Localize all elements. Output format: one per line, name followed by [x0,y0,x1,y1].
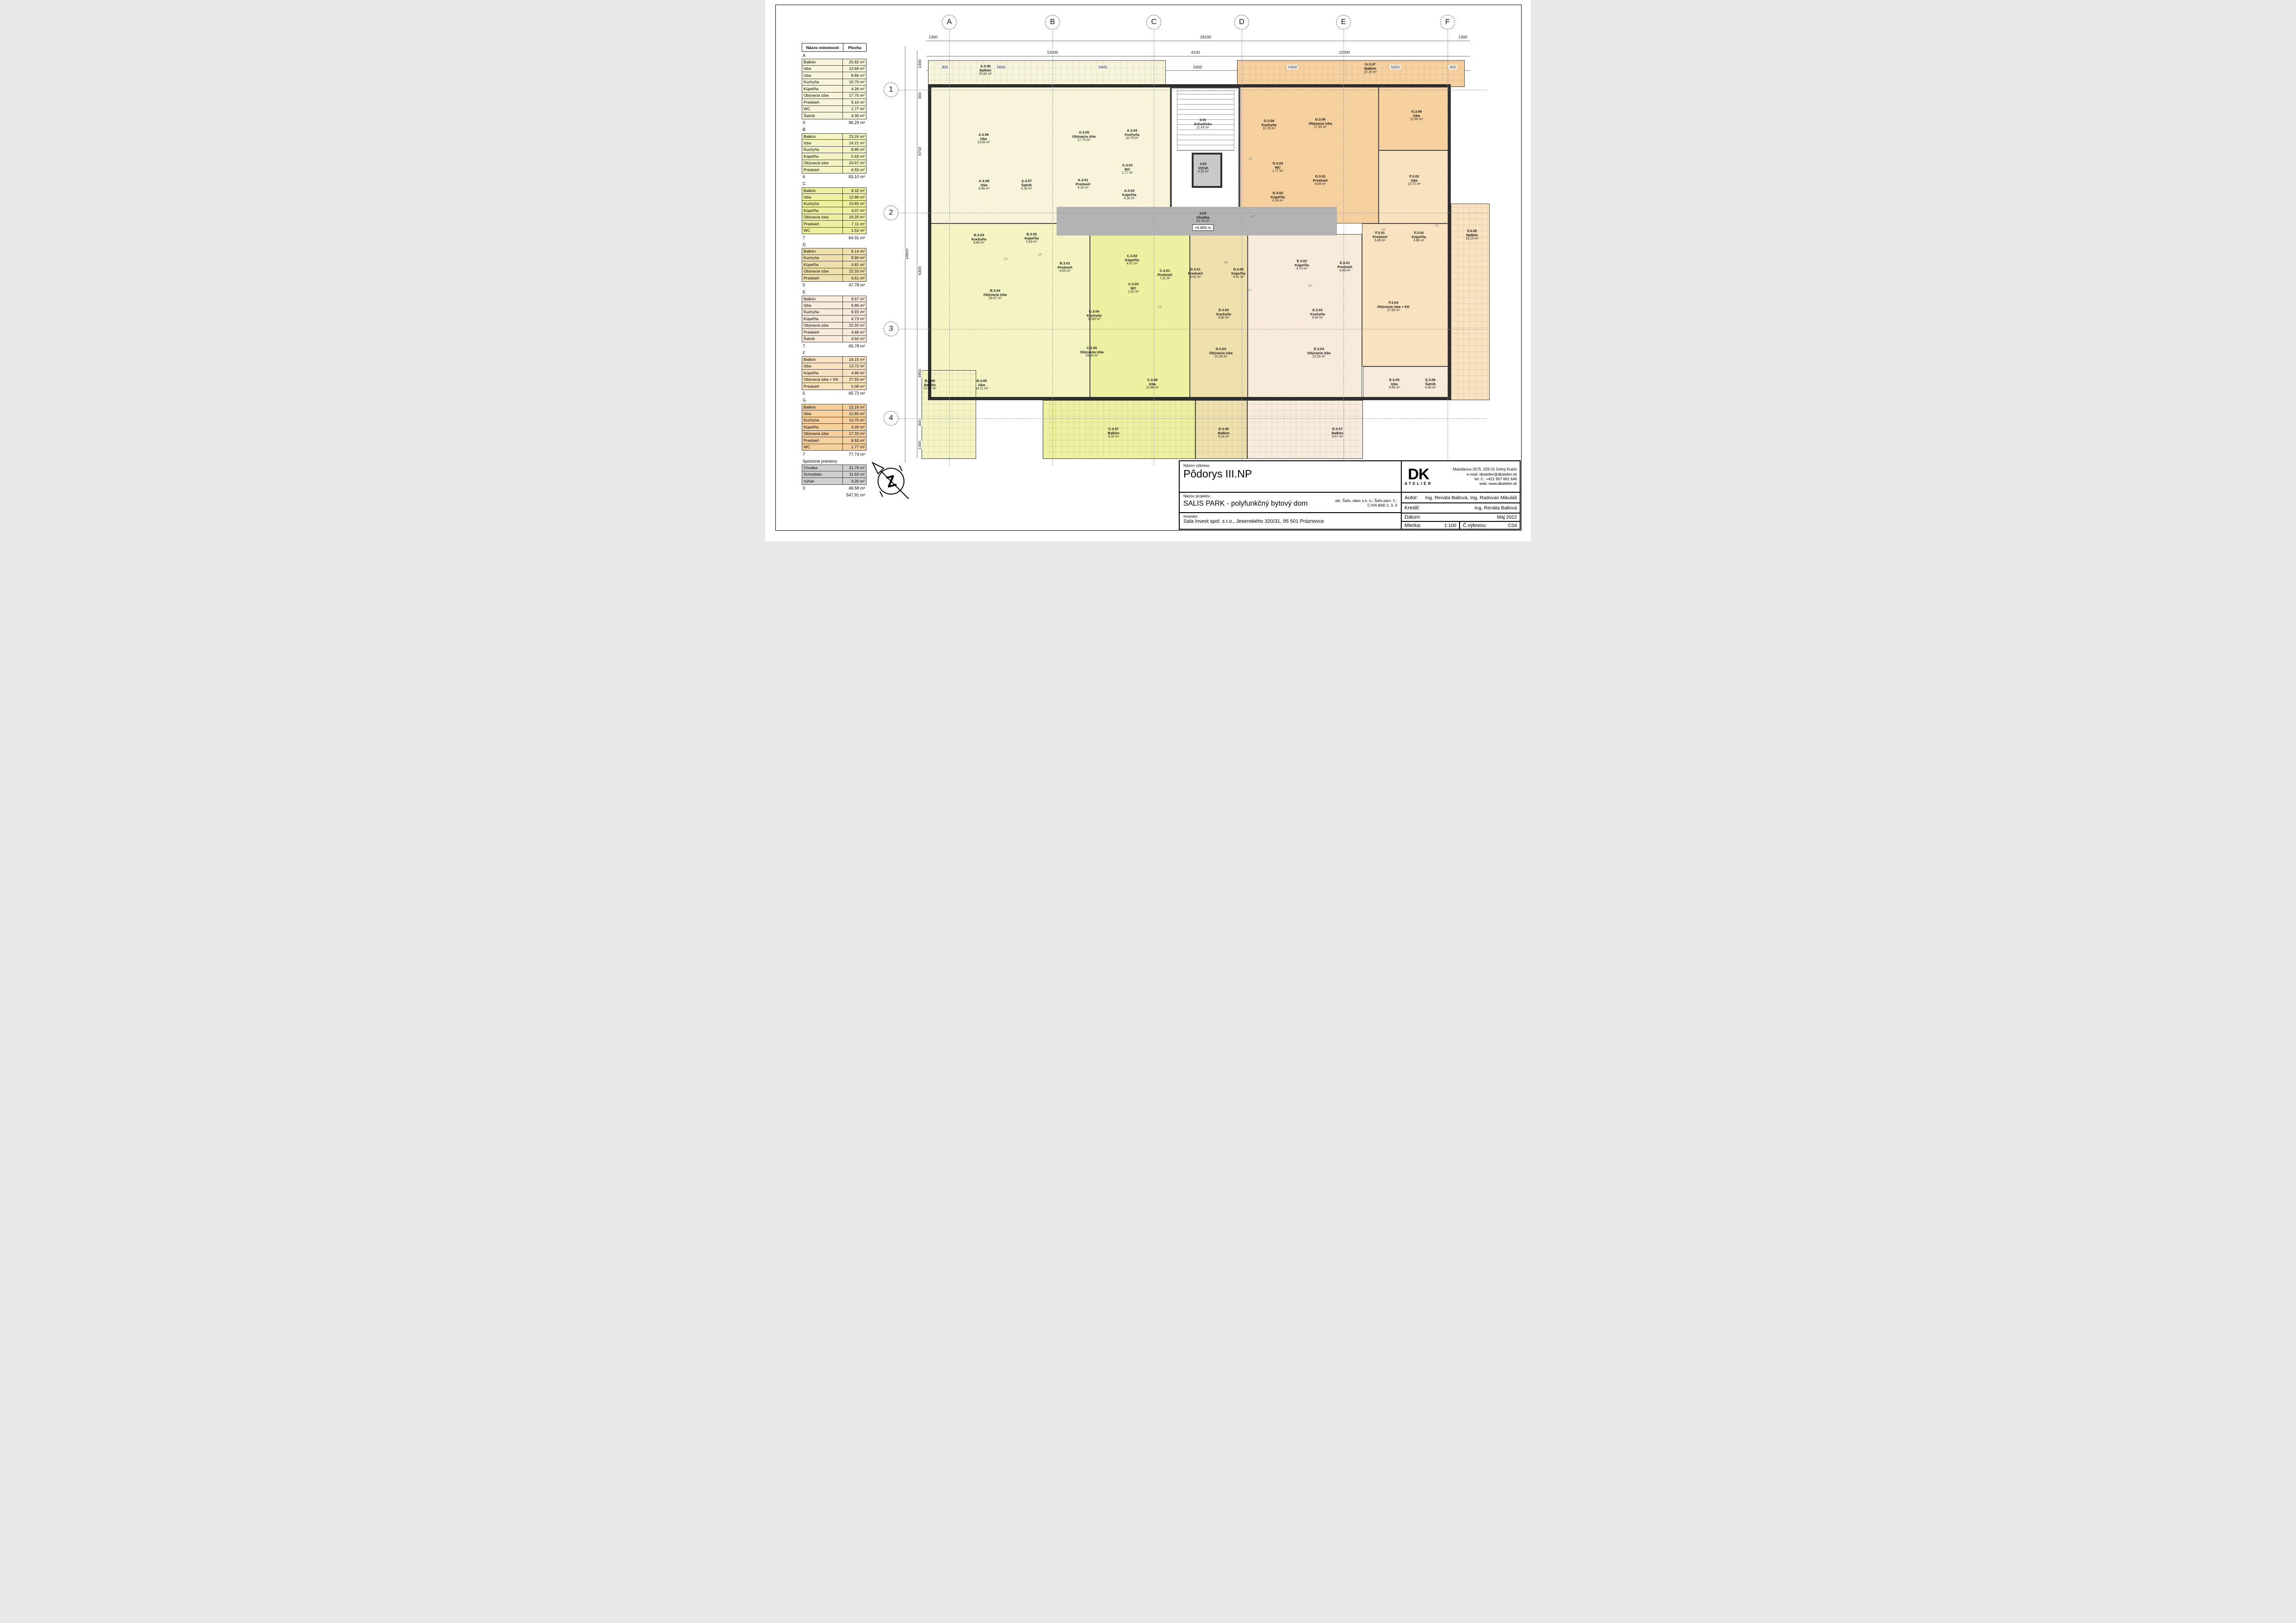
room-name-cell: Kuchyňa [802,309,843,316]
table-row: Kúpeľňa4.86 m² [802,370,866,377]
table-row: Kuchyňa10.83 m² [802,201,866,208]
zone-unit-c [1090,234,1190,399]
table-header-area: Plocha [843,43,866,51]
table-header-name: Názov miestnosti [802,43,843,51]
section-room-count: 3 [802,485,843,492]
room-area: 14.21 m² [975,387,988,391]
room-area-cell: 22.33 m² [843,268,866,275]
room-name: Kuchyňa [1125,133,1139,137]
table-row: Kúpeľňa4.26 m² [802,424,866,431]
room-name-cell: Obývacia izba [802,93,843,99]
table-section-label: B [802,126,866,133]
table-header: Názov miestnosti Plocha [802,43,866,52]
room-name: Predsieň [1188,272,1203,276]
room-label-B.3.06: B.3.06Balkón23.24 m² [923,379,936,391]
room-name: Obývacia izba + KK [1377,305,1410,309]
room-label-F.3.04: F.3.04Obývacia izba + KK27.93 m² [1377,301,1410,313]
room-name-cell: WC [802,228,843,234]
room-label-G.3.04: G.3.04Kuchyňa10.70 m² [1262,119,1276,131]
room-label-D.3.04: D.3.04Obývacia izba22.33 m² [1209,347,1233,359]
room-name: Predsieň [1058,266,1072,270]
room-area-cell: 10.70 m² [843,417,866,424]
datum-value: Máj 2022 [1497,514,1517,520]
table-row: Predsieň6.50 m² [802,167,866,173]
room-label-B.3.02: B.3.02Kúpeľňa5.63 m² [1025,233,1039,244]
table-section-summary: 346.58 m² [802,485,866,492]
room-name-cell: Izba [802,140,843,146]
table-row: WC1.52 m² [802,228,866,235]
dimension-label: 300 [917,93,922,99]
room-name: Kuchyňa [1310,312,1325,316]
parcel-note-line1: okr. Šaľa, obec a k. ú.: Šaľa parc. č.: [1335,498,1397,503]
dimension-label: 6750 [917,147,922,156]
table-row: Kuchyňa8.85 m² [802,147,866,154]
room-name: WC [1122,167,1133,172]
room-area: 3.20 m² [1198,170,1209,174]
table-row: Balkón9.67 m² [802,296,866,303]
room-area: 9.16 m² [1076,186,1090,190]
room-area-table: Názov miestnosti Plocha ABalkón25.82 m²I… [802,43,866,499]
dimension-label-overall: 18600 [904,248,909,260]
grid-line-C [1154,29,1154,465]
room-name: Predsieň [1313,179,1328,183]
room-name: Výťah [1198,166,1209,170]
table-row: Balkón9.32 m² [802,187,866,194]
grid-bubble-A: A [942,15,957,30]
room-name: Predsieň [1076,182,1090,186]
room-name-cell: Schodisko [802,471,843,478]
room-name-cell: Izba [802,66,843,72]
room-area: 9.93 m² [1310,316,1325,320]
dimension-label: 5400 [1287,65,1298,69]
room-name-cell: Obývacia izba [802,431,843,437]
room-name: Izba [1408,179,1421,183]
room-label-A.3.03: A.3.03WC1.77 m² [1122,164,1133,175]
room-area-cell: 4.30 m² [843,112,866,119]
table-row: Obývacia izba24.67 m² [802,160,866,167]
table-row: Izba12.86 m² [802,194,866,201]
room-area-cell: 12.60 m² [843,410,866,417]
appliance-tag-Ch: Ch [1158,306,1162,309]
room-label-A.3.04: A.3.04Kuchyňa10.70 m² [1125,129,1139,141]
room-name: Obývacia izba [1072,135,1096,139]
zone-balcony-a309 [928,60,1166,87]
room-name: Kúpeľňa [1295,263,1309,267]
room-name-cell: Predsieň [802,437,843,444]
room-label-C.3.05: C.3.05Obývacia izba19.20 m² [1080,347,1104,358]
grid-line-3 [898,329,1487,329]
table-row: Balkón23.24 m² [802,133,866,140]
grid-line-E [1343,29,1344,465]
grid-line-F [1448,29,1448,465]
room-name-cell: Predsieň [802,99,843,105]
room-label-3.03: 3.03Chodba31.76 m² [1196,212,1209,223]
dimension-label: 28100 [1199,35,1212,39]
table-row: Obývacia izba19.20 m² [802,214,866,221]
room-name-cell: Predsieň [802,275,843,281]
room-name-cell: Balkón [802,357,843,363]
grid-line-B [1052,29,1053,465]
table-row: Predsieň4.68 m² [802,329,866,336]
room-name-cell: Izba [802,410,843,417]
room-label-A.3.05: A.3.05Obývacia izba17.75 m² [1072,131,1096,142]
grid-bubble-D: D [1234,15,1249,30]
room-name: Obývacia izba [1080,350,1104,354]
room-area-cell: 19.20 m² [843,214,866,221]
grid-line-A [949,29,950,465]
dimension-label: 4950 [917,369,922,378]
room-label-G.3.05: G.3.05Obývacia izba17.33 m² [1309,118,1332,130]
grid-bubble-1: 1 [884,82,898,97]
room-area-cell: 1.77 m² [843,444,866,451]
room-area-cell: 9.32 m² [843,188,866,194]
table-row: Predsieň4.61 m² [802,275,866,282]
room-name-cell: Kuchyňa [802,147,843,153]
dimension-label: 5650 [996,65,1007,69]
room-area: 17.33 m² [1309,126,1332,130]
dimension-label: 6300 [917,266,922,275]
section-room-count: 7 [802,451,843,458]
table-row: Chodba31.76 m² [802,465,866,471]
room-name-cell: Predsieň [802,329,843,335]
room-name-cell: Kuchyňa [802,417,843,424]
dim-chain-line [926,41,1470,41]
room-area-cell: 1.77 m² [843,106,866,112]
drawing-name: Pôdorys III.NP [1183,468,1397,480]
room-area: 9.90 m² [1216,316,1231,320]
room-label-A.3.09: A.3.09Balkón25.82 m² [979,65,992,76]
room-area-cell: 14.21 m² [843,140,866,146]
room-label-C.3.06: C.3.06Izba12.86 m² [1146,378,1159,390]
section-total-area: 65.73 m² [843,390,866,397]
table-row: Izba9.86 m² [802,302,866,309]
addr-line3: tel. č.: +421 907 661 646 [1436,477,1517,481]
table-row: Balkón14.15 m² [802,356,866,363]
wall-west [928,84,931,400]
appliance-tag-AP: AP [1308,285,1312,288]
addr-line2: e-mail: dkatelier@dkatelier.sk [1436,472,1517,477]
room-area: 1.77 m² [1272,170,1283,173]
room-area: 8.86 m² [978,187,990,191]
parcel-note-line2: C-KN 806/ 2, 3, 4 [1335,503,1397,508]
room-name-cell: Chodba [802,465,843,471]
table-row: Balkón25.82 m² [802,59,866,66]
section-total-area: 47.78 m² [843,282,866,289]
mierka-label: Mierka: [1405,523,1421,528]
room-label-F.3.01: F.3.01Predsieň5.08 m² [1373,231,1387,243]
room-name-cell: Predsieň [802,221,843,227]
drawing-sheet: Názov miestnosti Plocha ABalkón25.82 m²I… [765,0,1531,541]
room-name: Obývacia izba [1209,351,1233,355]
room-label-B.3.03: B.3.03Kuchyňa8.85 m² [972,234,986,245]
room-name-cell: Kúpeľňa [802,370,843,376]
room-area: 11.63 m² [1194,126,1212,130]
room-area-cell: 23.24 m² [843,134,866,140]
dk-logo-sub: ATELIÉR [1405,481,1432,486]
room-area: 10.83 m² [1087,318,1102,322]
table-row: Izba12.60 m² [802,410,866,417]
investor-value: Sala Invest spol. s.r.o., Jesenského 320… [1183,519,1397,524]
room-name: Balkón [1218,431,1229,435]
room-name: Predsieň [1373,235,1387,239]
dimension-label: 1300 [928,35,939,39]
zone-unit-f [1362,223,1449,366]
room-name: Kúpeľňa [1232,272,1246,276]
table-section-label: D [802,241,866,248]
room-name: Chodba [1196,216,1209,220]
room-area: 23.24 m² [923,387,936,391]
table-section-summary: 764.91 m² [802,234,866,241]
room-label-C.3.07: C.3.07Balkón9.32 m² [1108,427,1119,439]
room-area: 13.72 m² [1408,183,1421,186]
room-area: 4.68 m² [1337,269,1352,273]
room-label-E.3.03: E.3.03Kuchyňa9.93 m² [1310,309,1325,320]
north-arrow-icon: Z [868,459,914,505]
room-area: 4.07 m² [1125,262,1139,266]
room-area: 8.93 m² [1313,183,1328,186]
dimension-label: 12000 [1338,50,1351,55]
room-name-cell: Izba [802,302,843,309]
room-label-D.3.01: D.3.01Predsieň4.61 m² [1188,268,1203,279]
table-row: Izba8.86 m² [802,72,866,79]
room-name: Izba [978,183,990,187]
appliance-tag-Ch: Ch [1004,258,1008,261]
room-name: Kúpeľňa [1122,193,1137,197]
wall-south [928,397,1451,400]
room-area: 4.81 m² [1232,276,1246,279]
dim-chain-line [917,51,917,458]
table-section-summary: 996.29 m² [802,119,866,126]
appliance-tag-AP: AP [1251,215,1256,218]
room-name: Predsieň [1337,265,1352,269]
room-label-E.3.07: E.3.07Balkón9.67 m² [1331,427,1343,439]
zone-unit-g [1240,87,1379,223]
room-name-cell: WC [802,444,843,451]
room-area: 4.86 m² [1412,239,1426,243]
grand-total-area: 547.91 m² [843,492,866,499]
table-row: Obývacia izba17.33 m² [802,431,866,438]
room-name-cell: Kúpeľňa [802,261,843,268]
table-row: Balkón22.16 m² [802,404,866,411]
room-area: 4.26 m² [1122,197,1137,201]
room-area: 25.82 m² [979,73,992,76]
room-area-cell: 4.68 m² [843,329,866,335]
room-name: Kúpeľňa [1412,235,1426,239]
mierka-value: 1:100 [1444,523,1456,528]
room-label-D.3.02: D.3.02Kúpeľňa4.81 m² [1232,268,1246,279]
room-area: 9.32 m² [1108,435,1119,439]
wall-north [928,84,1451,87]
table-row: Predsieň7.11 m² [802,221,866,228]
room-name-cell: Kúpeľňa [802,86,843,92]
room-name-cell: Kúpeľňa [802,153,843,160]
room-name-cell: Balkón [802,59,843,65]
table-row: Kuchyňa9.93 m² [802,309,866,316]
room-label-C.3.01: C.3.01Predsieň7.11 m² [1157,269,1172,281]
room-area: 19.20 m² [1080,354,1104,358]
dimension-label: 5650 [1390,65,1401,69]
room-label-A.3.01: A.3.01Predsieň9.16 m² [1076,179,1090,190]
room-name: WC [1272,166,1283,170]
table-row: WC1.77 m² [802,444,866,451]
wall-east [1448,84,1451,400]
grid-bubble-4: 4 [884,411,898,426]
room-name: Obývacia izba [984,293,1007,297]
grid-bubble-F: F [1440,15,1455,30]
room-area: 4.30 m² [1021,187,1032,191]
room-name: Kuchyňa [972,237,986,242]
room-name-cell: Kúpeľňa [802,207,843,214]
room-area-cell: 5.08 m² [843,383,866,390]
room-name: Balkón [1466,233,1479,237]
room-label-3.02: 3.02Výťah3.20 m² [1198,162,1209,174]
room-area-cell: 22.16 m² [843,404,866,410]
room-name: Balkón [1364,67,1377,71]
room-name-cell: WC [802,106,843,112]
room-label-E.3.04: E.3.04Obývacia izba22.33 m² [1307,347,1331,359]
section-room-count: 7 [802,234,843,241]
room-area-cell: 8.93 m² [843,437,866,444]
room-label-A.3.06: A.3.06Izba13.68 m² [977,133,990,145]
room-area-cell: 1.52 m² [843,228,866,234]
room-area: 17.75 m² [1072,139,1096,142]
room-area: 4.73 m² [1295,267,1309,271]
room-area-cell: 4.61 m² [843,275,866,281]
room-area-cell: 27.93 m² [843,377,866,383]
section-room-count: 9 [802,119,843,126]
zone-e-bottom [1363,366,1449,399]
section-room-count: 7 [802,342,843,349]
appliance-tag-Ch: Ch [1249,158,1252,161]
room-name-cell: Balkón [802,188,843,194]
table-section-label: F [802,349,866,356]
room-label-B.3.05: B.3.05Izba14.21 m² [975,379,988,391]
room-name-cell: Kúpeľňa [802,424,843,430]
room-area-cell: 17.33 m² [843,431,866,437]
room-label-A.3.08: A.3.08Izba8.86 m² [978,180,990,191]
room-name: Balkón [979,68,992,73]
room-name-cell: Balkón [802,248,843,254]
room-label-F.3.05: F.3.05Balkón14.15 m² [1466,229,1479,241]
room-area-cell: 25.82 m² [843,59,866,65]
room-area: 10.70 m² [1125,137,1139,141]
room-label-F.3.03: F.3.03Kúpeľňa4.86 m² [1412,231,1426,243]
autor-label: Autor: [1405,495,1418,501]
room-name: Obývacia izba [1309,122,1332,126]
datum-label: Dátum: [1405,514,1421,520]
table-row: Schodisko11.63 m² [802,471,866,478]
room-label-A.3.07: A.3.07Šatník4.30 m² [1021,180,1032,191]
room-area-cell: 4.81 m² [843,261,866,268]
investor-label: Investor: [1183,514,1397,519]
table-row: Obývacia izba22.33 m² [802,268,866,275]
room-area-cell: 4.07 m² [843,207,866,214]
room-label-E.3.05: E.3.05Izba9.86 m² [1389,378,1400,390]
table-row: Kuchyňa10.70 m² [802,417,866,424]
room-label-D.3.05: D.3.05Balkón6.14 m² [1218,427,1229,439]
room-label-C.3.02: C.3.02Kúpeľňa4.07 m² [1125,254,1139,266]
room-name-cell: Šatník [802,112,843,119]
room-label-E.3.01: E.3.01Predsieň4.68 m² [1337,261,1352,273]
table-row: Obývacia izba17.75 m² [802,93,866,99]
room-name: Izba [1146,382,1159,386]
room-label-G.3.01: G.3.01Predsieň8.93 m² [1313,175,1328,186]
room-area: 9.86 m² [1389,386,1400,390]
room-area-cell: 13.72 m² [843,363,866,370]
room-area: 1.52 m² [1128,291,1139,294]
room-area: 9.67 m² [1331,435,1343,439]
room-name-cell: Balkón [802,134,843,140]
project-name: SALIS PARK - polyfunkčný bytový dom [1183,500,1308,508]
room-area-cell: 10.83 m² [843,201,866,207]
dimension-label: 5400 [1193,65,1203,69]
room-name-cell: Výťah [802,478,843,484]
room-area: 6.50 m² [1058,270,1072,273]
room-name-cell: Izba [802,363,843,370]
room-label-B.3.04: B.3.04Obývacia izba24.67 m² [984,289,1007,301]
appliance-tag-Ch: Ch [1435,224,1439,228]
table-row: Predsieň8.93 m² [802,437,866,444]
section-room-count: 5 [802,390,843,397]
room-label-G.3.02: G.3.02Kúpeľňa4.26 m² [1271,192,1285,203]
room-name-cell: Kuchyňa [802,201,843,207]
room-label-F.3.02: F.3.02Izba13.72 m² [1408,175,1421,186]
room-name: Kúpeľňa [1271,195,1285,199]
room-area: 22.16 m² [1364,71,1377,74]
addr-line4: web: www.dkatelier.sk [1436,481,1517,486]
table-section-summary: 683.10 m² [802,173,866,180]
room-area: 12.60 m² [1410,118,1423,122]
room-name: Kúpeľňa [1125,258,1139,262]
dimension-label: 300 [1448,65,1457,69]
room-area: 22.33 m² [1209,355,1233,359]
grid-line-D [1242,29,1242,465]
room-area-cell: 4.26 m² [843,86,866,92]
kreslil-value: Ing. Renáta Ballová [1474,505,1517,511]
table-row: Šatník4.60 m² [802,336,866,343]
room-area: 4.61 m² [1188,276,1203,279]
room-name: Šatník [1425,382,1436,386]
room-name: Obývacia izba [1307,351,1331,355]
section-total-area: 64.91 m² [843,234,866,241]
table-section-summary: 565.73 m² [802,390,866,397]
room-area: 8.85 m² [972,242,986,245]
room-name-cell: Kuchyňa [802,79,843,86]
room-area-cell: 8.85 m² [843,147,866,153]
room-area-cell: 17.75 m² [843,93,866,99]
room-area-cell: 9.16 m² [843,99,866,105]
room-area: 14.15 m² [1466,237,1479,241]
room-name: Balkón [1331,431,1343,435]
grid-bubble-2: 2 [884,205,898,220]
table-row: Kúpeľňa4.07 m² [802,207,866,214]
room-area-cell: 9.93 m² [843,309,866,316]
table-row: Šatník4.30 m² [802,112,866,119]
room-area: 24.67 m² [984,297,1007,301]
room-name: Kuchyňa [1087,314,1102,318]
table-row: Kúpeľňa4.26 m² [802,86,866,93]
table-section-summary: 765.78 m² [802,342,866,349]
room-area-cell: 6.50 m² [843,167,866,173]
section-room-count: 5 [802,282,843,289]
room-name-cell: Obývacia izba [802,160,843,167]
room-name: Predsieň [1157,273,1172,277]
room-area-cell: 7.11 m² [843,221,866,227]
studio-address: Matúškova 2575, 026 01 Dolný Kubín e-mai… [1436,467,1517,486]
table-row: Izba13.72 m² [802,363,866,370]
table-section-label: A [802,52,866,59]
room-area-cell: 4.73 m² [843,316,866,322]
